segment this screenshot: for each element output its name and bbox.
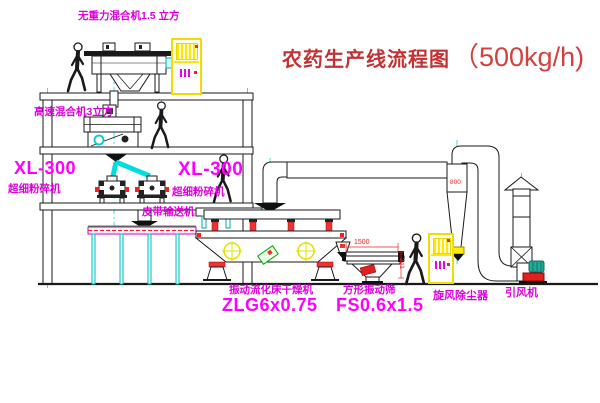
indicator-dot <box>447 263 450 266</box>
belt-conveyor-drawing <box>88 226 196 285</box>
page-title: 农药生产线流程图（500kg/h) <box>282 44 584 71</box>
dim-screen-length: 1500 <box>354 239 370 246</box>
title-text: 农药生产线流程图 <box>282 49 450 71</box>
vibrating-screen-drawing <box>342 243 404 284</box>
indicator-dot <box>194 71 197 74</box>
label-pulverizer-left-model: XL-300 <box>14 159 76 177</box>
label-dryer-name: 振动流化床干燥机 <box>229 285 313 296</box>
label-fan: 引风机 <box>505 288 538 299</box>
cabinet-divider <box>431 254 451 256</box>
label-pulverizer-left-name: 超细粉碎机 <box>8 184 61 195</box>
pulverizer-left-drawing <box>95 176 129 203</box>
fluid-bed-dryer-drawing <box>196 210 346 280</box>
exhaust-duct <box>254 162 447 212</box>
cabinet-divider <box>174 61 199 63</box>
indicator-dot <box>195 45 198 48</box>
dim-cyclone: 800 <box>450 180 461 187</box>
pulverizer-mid-drawing <box>135 176 169 203</box>
cabinet-marking <box>435 261 447 269</box>
worker-icon <box>68 43 85 91</box>
label-screen-model: FS0.6x1.5 <box>336 296 424 314</box>
control-cabinet-top <box>171 38 202 95</box>
worker-icon <box>152 102 168 148</box>
dim-screen-height: 341 <box>398 258 405 269</box>
label-screen-name: 方形振动筛 <box>343 285 396 296</box>
control-cabinet-right <box>428 233 454 284</box>
worker-icon <box>406 234 424 284</box>
y-duct <box>105 154 150 176</box>
title-capacity: （500kg/h) <box>452 42 584 72</box>
label-dryer-model: ZLG6x0.75 <box>222 296 318 314</box>
indicator-dot <box>447 239 450 242</box>
label-pulverizer-mid-model: XL-300 <box>178 160 243 179</box>
label-gravity-mixer: 无重力混合机1.5 立方 <box>78 11 180 22</box>
label-high-speed-mixer: 高速混合机3立方 <box>34 107 113 118</box>
label-belt-conveyor: 皮带输送机 <box>142 207 195 218</box>
label-pulverizer-mid-name: 超细粉碎机 <box>172 187 225 198</box>
exhaust-stack-drawing <box>505 177 538 267</box>
label-cyclone: 旋风除尘器 <box>433 291 488 302</box>
cabinet-marking <box>180 69 192 77</box>
fan-drawing <box>517 261 547 284</box>
flow-diagram-canvas: 农药生产线流程图（500kg/h) 无重力混合机1.5 立方 高速混合机3立方 … <box>0 0 600 403</box>
